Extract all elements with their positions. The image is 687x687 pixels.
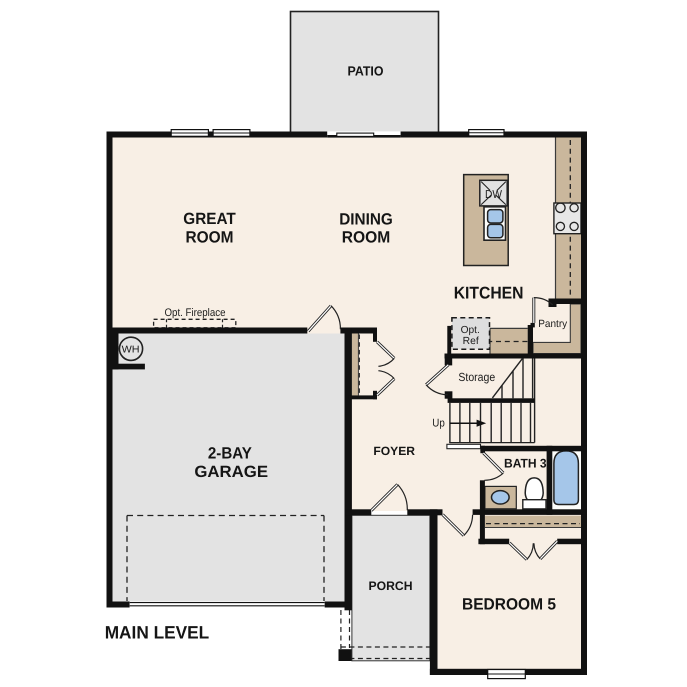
svg-text:DINING: DINING	[339, 210, 393, 228]
svg-text:WH: WH	[122, 344, 140, 355]
svg-text:Up: Up	[432, 417, 445, 429]
svg-text:Opt. Fireplace: Opt. Fireplace	[165, 307, 226, 319]
svg-text:BEDROOM 5: BEDROOM 5	[462, 595, 556, 613]
svg-text:BATH 3: BATH 3	[504, 457, 547, 471]
svg-text:KITCHEN: KITCHEN	[454, 283, 524, 302]
svg-text:Opt.: Opt.	[461, 325, 480, 336]
svg-text:MAIN LEVEL: MAIN LEVEL	[105, 622, 210, 642]
svg-text:ROOM: ROOM	[342, 229, 391, 247]
svg-text:PATIO: PATIO	[348, 64, 384, 79]
svg-text:PORCH: PORCH	[369, 579, 413, 593]
svg-text:Storage: Storage	[458, 370, 495, 384]
svg-text:GREAT: GREAT	[183, 210, 235, 228]
svg-text:2-BAY: 2-BAY	[208, 445, 252, 463]
svg-text:GARAGE: GARAGE	[194, 463, 268, 481]
svg-text:ROOM: ROOM	[186, 229, 234, 247]
svg-text:FOYER: FOYER	[373, 444, 415, 458]
svg-text:Pantry: Pantry	[538, 318, 568, 330]
svg-text:Ref: Ref	[463, 336, 479, 347]
svg-text:DW: DW	[485, 189, 502, 201]
